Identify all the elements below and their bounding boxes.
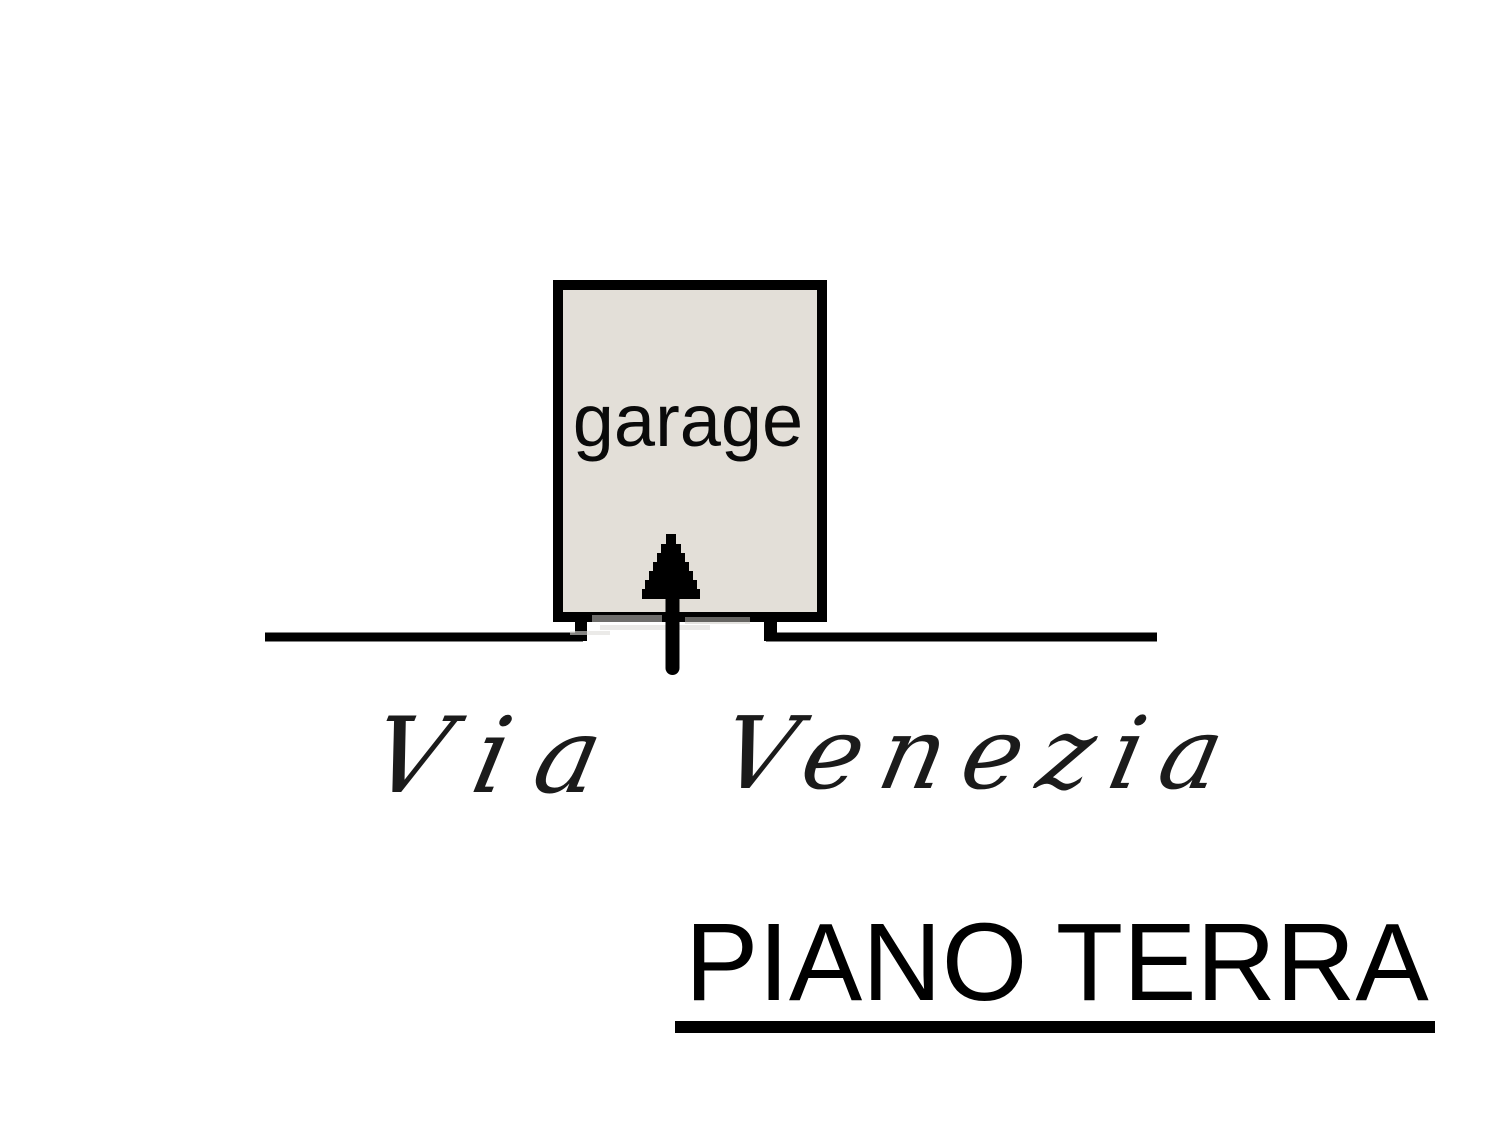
- door-sill-mark: [685, 617, 750, 624]
- street-name-word-2: Venezia: [711, 695, 1252, 812]
- door-sill-marks: [570, 615, 750, 635]
- door-sill-mark: [600, 625, 710, 630]
- street-name-label: Via Venezia: [361, 695, 1252, 818]
- room-label: garage: [573, 379, 803, 462]
- door-sill-mark: [570, 631, 610, 635]
- street-name-word-1: Via: [361, 695, 641, 818]
- floor-title: PIANO TERRA: [675, 905, 1435, 1033]
- floor-plan-canvas: garage Via Venezia PIANO TERRA: [0, 0, 1512, 1134]
- door-sill-mark: [592, 615, 662, 622]
